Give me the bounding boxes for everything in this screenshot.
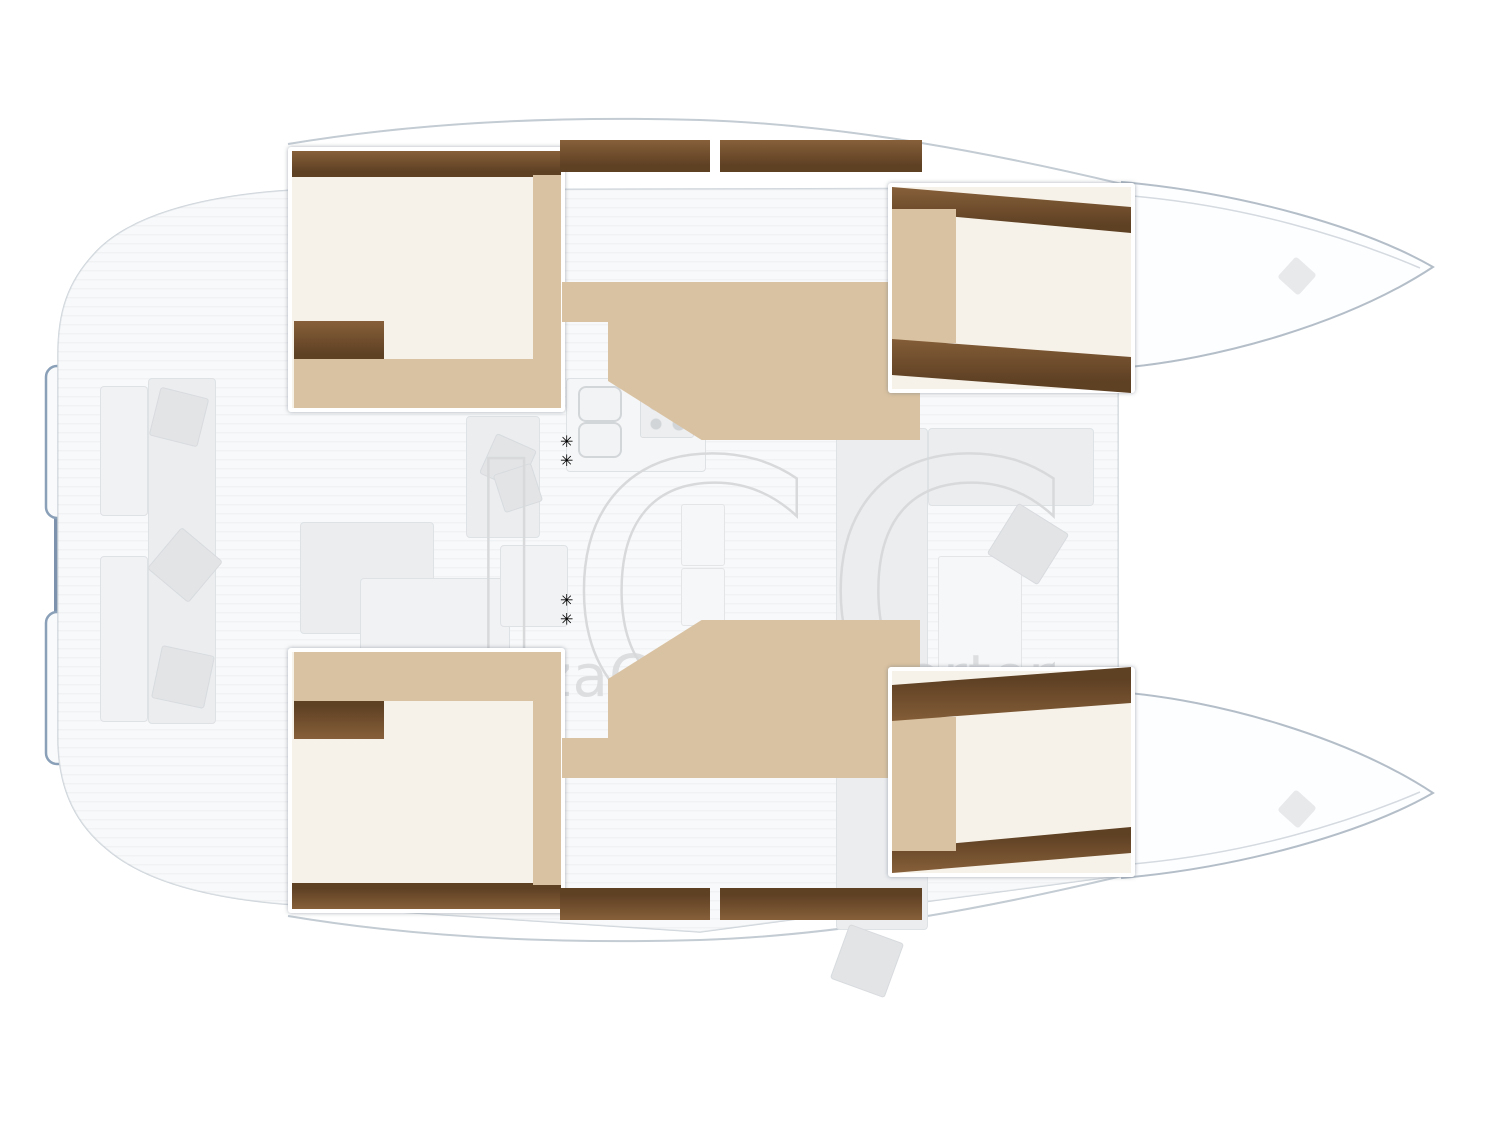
cabin-door — [892, 297, 944, 363]
step — [292, 157, 338, 177]
step — [292, 131, 330, 157]
bathroom-wall — [560, 888, 710, 920]
hanging-locker — [892, 249, 954, 297]
bed-frame — [892, 723, 1015, 873]
cabin-door — [292, 177, 330, 239]
bathroom-wall — [720, 888, 922, 920]
hull-floor — [562, 738, 920, 778]
starboard-fore-cabin — [888, 667, 1135, 877]
cabin-door — [892, 363, 944, 431]
hanging-locker — [292, 88, 364, 131]
catamaran-floor-plan: ICC IbizaCentralCharter — [0, 0, 1500, 1125]
cabin-floor — [533, 175, 561, 371]
bathroom-wall — [560, 140, 710, 172]
cabin-door — [292, 239, 330, 303]
cabin-floor — [533, 689, 561, 885]
bathroom-wall — [720, 140, 922, 172]
starboard-bathrooms: ✳ ✳ — [560, 618, 922, 920]
companionway-stairs — [560, 254, 637, 356]
passage-wall — [560, 356, 596, 502]
cabin-wall — [294, 697, 384, 739]
starboard-hull-interior: ✳ ✳ — [283, 482, 1448, 922]
hanging-locker — [292, 929, 364, 972]
cabin-floor — [294, 652, 561, 701]
shower-jet-icon: ✳ — [560, 590, 922, 609]
shower-jet-icon: ✳ — [560, 451, 922, 470]
starboard-aft-cabin — [288, 648, 565, 913]
bathroom-divider — [560, 502, 570, 590]
cushion — [151, 645, 215, 709]
aft-seat — [100, 556, 148, 722]
aft-seat — [100, 386, 148, 516]
